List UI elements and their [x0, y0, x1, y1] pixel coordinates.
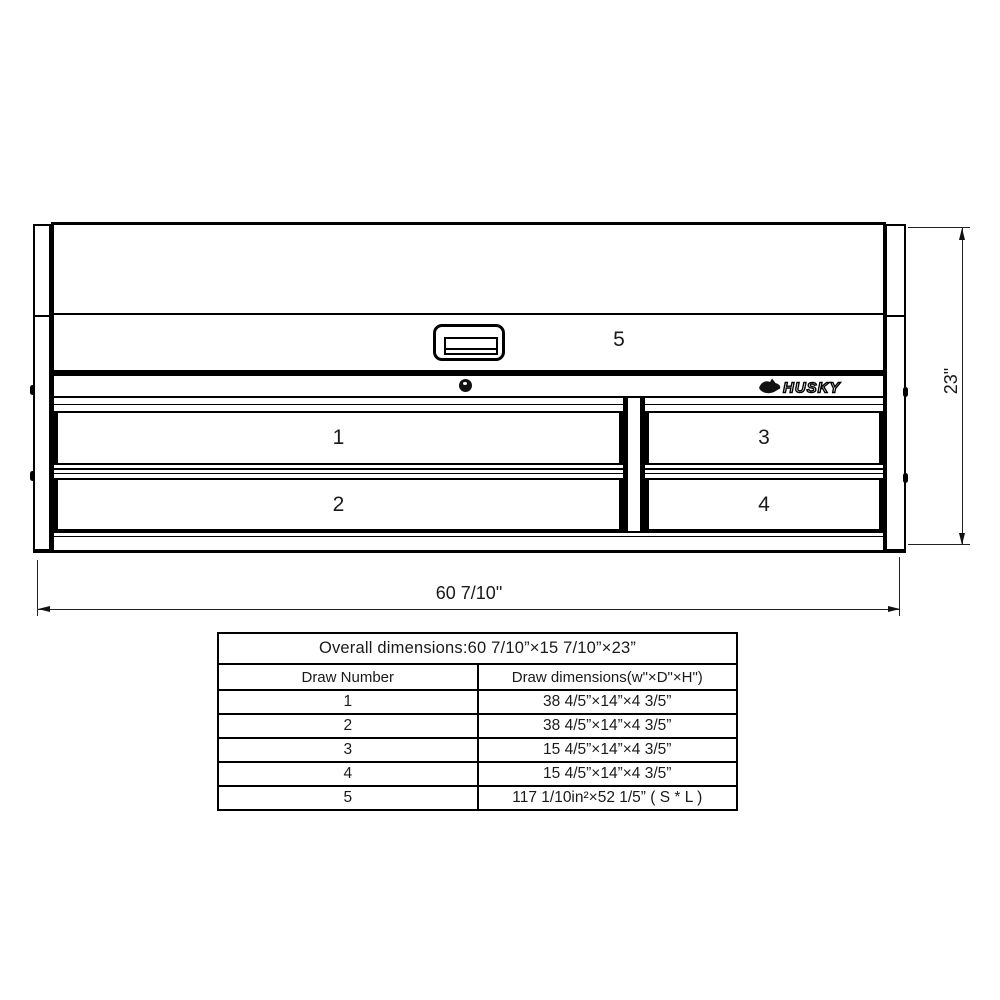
- width-dimension-label: 60 7/10": [369, 583, 569, 604]
- chest-lid: [54, 225, 883, 315]
- chest-base: [54, 531, 883, 550]
- draw-number-cell: 1: [218, 690, 478, 714]
- height-dimension-label: 23": [941, 351, 963, 411]
- table-row: 4 15 4/5”×14”×4 3/5”: [218, 762, 737, 786]
- left-drawer-column: 1 2: [54, 398, 623, 531]
- husky-dog-icon: [759, 379, 780, 394]
- center-divider: [623, 398, 645, 531]
- drawer-1: 1: [54, 411, 623, 465]
- compartment-5-label: 5: [594, 328, 644, 352]
- keylock-icon: [459, 379, 472, 392]
- table-row: 3 15 4/5”×14”×4 3/5”: [218, 738, 737, 762]
- draw-number-cell: 3: [218, 738, 478, 762]
- drawer-4-label: 4: [758, 493, 770, 517]
- arrow-right-icon: [888, 606, 900, 612]
- table-header-row: Draw Number Draw dimensions(w"×D"×H"): [218, 664, 737, 690]
- right-hinge-top: [903, 387, 908, 397]
- draw-dims-cell: 15 4/5”×14”×4 3/5”: [478, 762, 738, 786]
- drawer-handle-icon: [433, 324, 505, 361]
- slide-rail: [645, 398, 883, 411]
- drawer-1-label: 1: [333, 426, 345, 450]
- drawer-bank: 1 2 3 4: [54, 398, 883, 531]
- drawer-4: 4: [645, 478, 883, 531]
- husky-wordmark: HUSKY: [783, 380, 842, 397]
- lock-rail: HUSKY: [54, 376, 883, 398]
- chest-left-side-panel: [33, 224, 51, 553]
- drawer-3-label: 3: [758, 426, 770, 450]
- arrow-left-icon: [38, 606, 50, 612]
- right-hinge-bottom: [903, 473, 908, 483]
- overall-dimensions-title: Overall dimensions:60 7/10”×15 7/10”×23”: [218, 633, 737, 664]
- slide-rail: [54, 465, 623, 478]
- draw-dims-cell: 38 4/5”×14”×4 3/5”: [478, 714, 738, 738]
- table-row: 5 117 1/10in²×52 1/5” ( S * L ): [218, 786, 737, 810]
- width-dimension-line: [38, 609, 900, 610]
- table-row: 2 38 4/5”×14”×4 3/5”: [218, 714, 737, 738]
- husky-logo: HUSKY: [757, 377, 861, 397]
- drawer-2-label: 2: [333, 493, 345, 517]
- draw-number-cell: 2: [218, 714, 478, 738]
- drawer-2: 2: [54, 478, 623, 531]
- table-row: 1 38 4/5”×14”×4 3/5”: [218, 690, 737, 714]
- right-drawer-column: 3 4: [645, 398, 883, 531]
- slide-rail: [645, 465, 883, 478]
- drawer-3: 3: [645, 411, 883, 465]
- left-hinge-top: [30, 385, 35, 395]
- draw-dims-cell: 117 1/10in²×52 1/5” ( S * L ): [478, 786, 738, 810]
- draw-dims-cell: 15 4/5”×14”×4 3/5”: [478, 738, 738, 762]
- tool-chest-front-view: 5 HUSKY 1 2: [51, 222, 886, 553]
- handle-recess: [444, 337, 498, 355]
- draw-dims-cell: 38 4/5”×14”×4 3/5”: [478, 690, 738, 714]
- draw-number-header: Draw Number: [218, 664, 478, 690]
- arrow-up-icon: [959, 228, 965, 240]
- slide-rail: [54, 398, 623, 411]
- draw-number-cell: 4: [218, 762, 478, 786]
- table-title-row: Overall dimensions:60 7/10”×15 7/10”×23”: [218, 633, 737, 664]
- technical-drawing-page: 5 HUSKY 1 2: [0, 0, 1000, 1000]
- draw-number-cell: 5: [218, 786, 478, 810]
- draw-dimensions-header: Draw dimensions(w"×D"×H"): [478, 664, 738, 690]
- right-lid-seam: [887, 226, 904, 317]
- left-lid-seam: [35, 226, 49, 317]
- arrow-down-icon: [959, 533, 965, 545]
- left-hinge-bottom: [30, 471, 35, 481]
- dimension-spec-table: Overall dimensions:60 7/10”×15 7/10”×23”…: [217, 632, 738, 811]
- top-compartment-front: 5: [54, 315, 883, 370]
